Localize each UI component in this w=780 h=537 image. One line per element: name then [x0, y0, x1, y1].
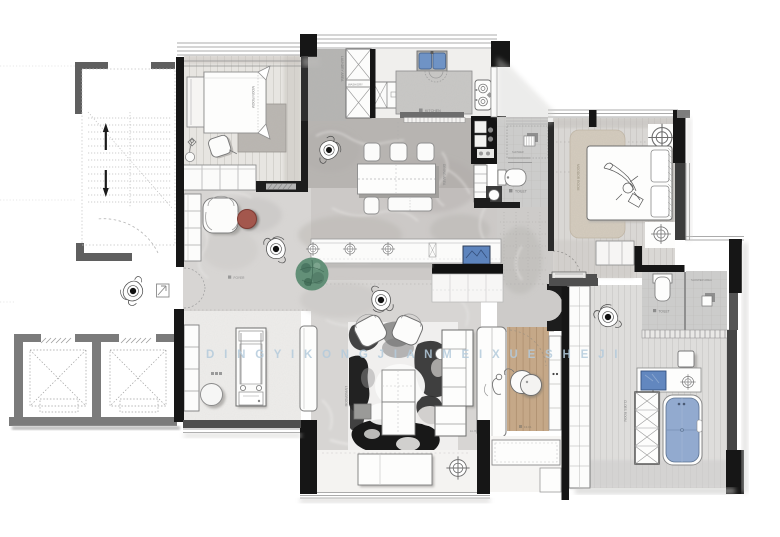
- svg-text:SHOWER AREA: SHOWER AREA: [691, 278, 712, 282]
- svg-text:TOILET: TOILET: [515, 190, 527, 194]
- svg-text:MOON ROOM: MOON ROOM: [251, 86, 255, 108]
- svg-text:CLOES ROOM: CLOES ROOM: [623, 400, 627, 422]
- svg-text:DINING AREA: DINING AREA: [442, 164, 446, 186]
- svg-text:TOILET: TOILET: [659, 309, 670, 313]
- svg-text:MOODOR ROOM: MOODOR ROOM: [576, 164, 580, 191]
- svg-text:D I N G Y I K O N G J I A N: D I N G Y I K O N G J I A N M E I X U E …: [206, 349, 621, 361]
- svg-text:LAUNDRY AREA: LAUNDRY AREA: [340, 56, 344, 82]
- svg-text:WASH/DRY: WASH/DRY: [348, 83, 363, 87]
- svg-text:FOYER: FOYER: [234, 276, 246, 280]
- svg-text:SHOWER: SHOWER: [512, 150, 524, 154]
- svg-text:13.01: 13.01: [524, 425, 532, 429]
- svg-text:LIVINGROOM: LIVINGROOM: [344, 386, 348, 407]
